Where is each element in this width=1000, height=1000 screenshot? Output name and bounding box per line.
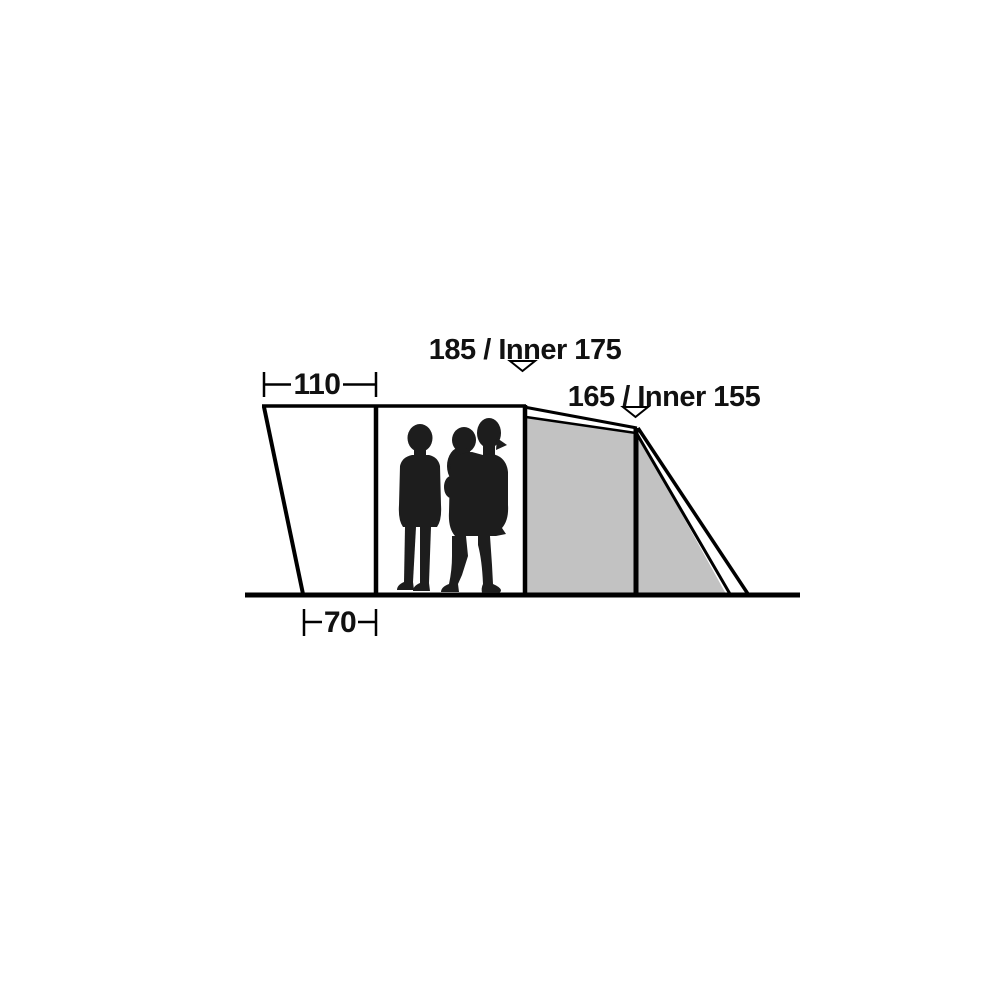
height-main-marker-icon xyxy=(510,361,535,371)
height-rear-label: 165 / Inner 155 xyxy=(568,381,761,413)
adult-with-child-silhouette xyxy=(441,418,508,593)
people-silhouettes xyxy=(397,418,508,593)
width-top-label: 110 xyxy=(294,368,341,401)
woman-torso xyxy=(399,455,441,527)
woman-right-leg xyxy=(420,527,431,583)
adult-back-foot xyxy=(482,584,501,593)
adult-front-foot xyxy=(441,584,459,592)
rear-cabin-panel xyxy=(526,418,636,595)
adult-torso xyxy=(449,452,508,536)
woman-left-leg xyxy=(404,527,416,582)
tent-dimension-diagram: 110 70 185 / Inner 175 165 / Inner 155 xyxy=(0,0,1000,1000)
width-bottom-label: 70 xyxy=(324,606,356,639)
woman-silhouette xyxy=(397,424,441,591)
adult-hair-flick xyxy=(496,438,507,450)
tent-gray-panels xyxy=(526,418,726,595)
woman-left-foot xyxy=(397,582,414,590)
woman-head xyxy=(408,424,433,452)
adult-front-leg xyxy=(449,536,468,584)
tent-outline xyxy=(245,405,800,595)
diagram-svg: 110 70 185 / Inner 175 165 / Inner 155 xyxy=(0,0,1000,1000)
adult-back-leg xyxy=(478,536,493,584)
woman-right-foot xyxy=(413,583,430,591)
porch-front-slant xyxy=(264,407,303,594)
